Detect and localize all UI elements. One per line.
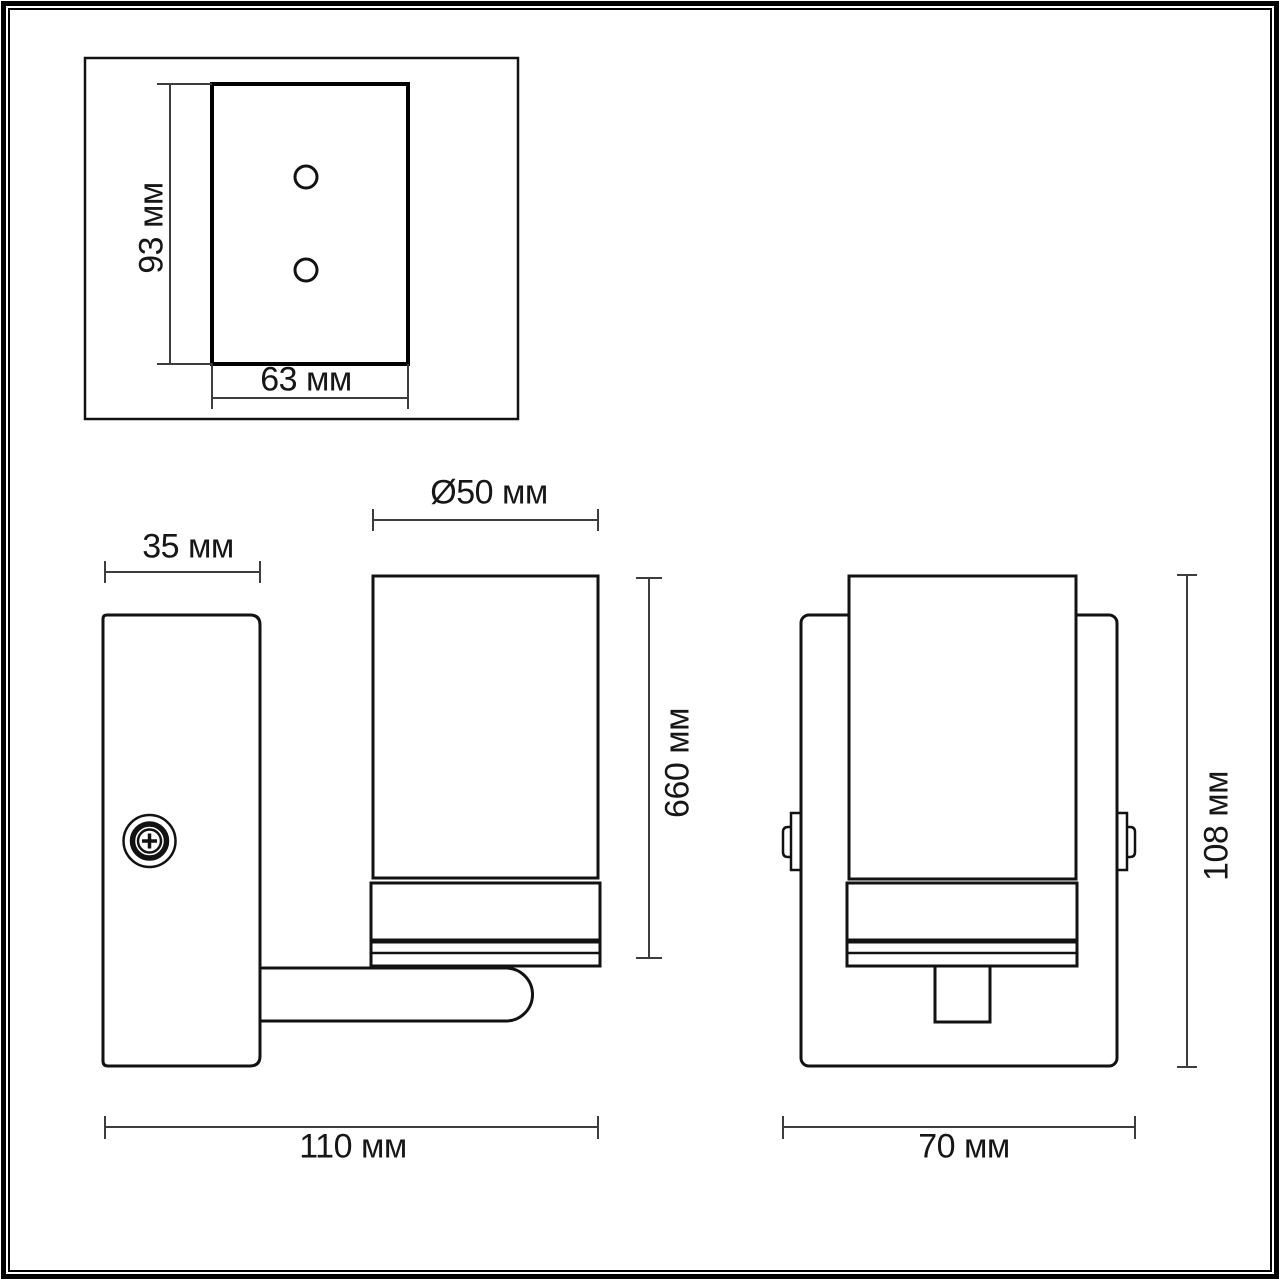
- total-height-label: 108 мм: [1198, 771, 1237, 881]
- shade-diameter-label: Ø50 мм: [430, 474, 547, 513]
- left-knob: [783, 813, 802, 870]
- mounting-plate-height-label: 93 мм: [133, 182, 172, 274]
- shade-height-label: 660 мм: [659, 708, 698, 818]
- arm-stub-front: [935, 966, 990, 1022]
- right-knob: [1116, 813, 1135, 870]
- drawing-lines: [0, 0, 1280, 1280]
- total-depth-label: 110 мм: [299, 1128, 406, 1167]
- shade-side: [373, 576, 598, 878]
- mounting-hole-bottom: [295, 259, 317, 281]
- shade-front: [849, 576, 1076, 879]
- side-view: [103, 509, 662, 1139]
- mounting-plate-width-label: 63 мм: [260, 361, 352, 400]
- front-view: [783, 575, 1197, 1139]
- total-width-label: 70 мм: [918, 1128, 1010, 1167]
- screw-icon: [124, 815, 176, 867]
- mounting-hole-top: [295, 166, 317, 188]
- lamp-arm: [260, 968, 533, 1021]
- plate-depth-label: 35 мм: [142, 528, 234, 567]
- drawing-sheet: 93 мм 63 мм 35 мм Ø50 мм 660 мм 110 мм 1…: [0, 0, 1280, 1280]
- dim-108-lines: [1177, 575, 1197, 1067]
- mounting-plate-outline: [212, 84, 408, 364]
